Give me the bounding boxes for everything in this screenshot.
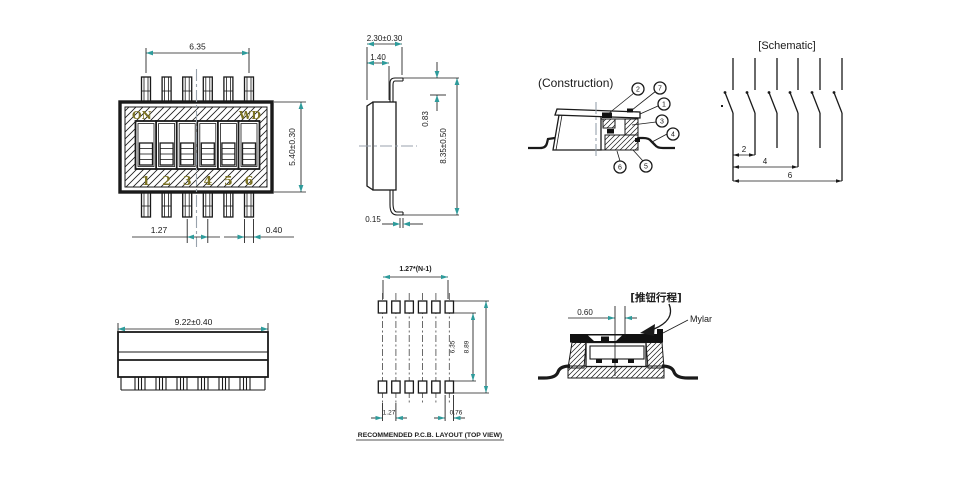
dim-label-height: 5.40±0.30 bbox=[287, 128, 297, 166]
base-block bbox=[605, 135, 638, 150]
dim-label-pad-width: 0.76 bbox=[450, 410, 463, 417]
right-lead bbox=[662, 366, 698, 378]
mylar-label: Mylar bbox=[690, 314, 712, 324]
left-lead bbox=[528, 138, 555, 148]
travel-arrow bbox=[654, 304, 671, 329]
left-wall-section bbox=[568, 343, 586, 369]
position-label-4: 4 bbox=[763, 157, 768, 166]
brand-marking: WD bbox=[238, 109, 261, 122]
dim-label-lead-thickness: 0.15 bbox=[365, 215, 381, 224]
switch-number: 6 bbox=[245, 173, 254, 188]
on-marking: ON bbox=[132, 109, 152, 122]
contact bbox=[607, 129, 614, 134]
switch-number: 2 bbox=[162, 173, 171, 188]
schematic-title: [Schematic] bbox=[758, 40, 815, 52]
switch-number: 4 bbox=[203, 173, 212, 188]
cover-tab bbox=[627, 109, 633, 113]
callout-1-label: 1 bbox=[662, 102, 666, 109]
switch-number: 3 bbox=[183, 173, 192, 188]
travel-label: [推钮行程] bbox=[630, 291, 682, 304]
bottom-lead bbox=[390, 190, 403, 215]
switch-number: 5 bbox=[224, 173, 233, 188]
callout-3-label: 3 bbox=[660, 119, 664, 126]
dim-label-travel: 0.60 bbox=[577, 308, 593, 317]
dim-label-pin-width: 0.40 bbox=[266, 225, 283, 235]
pcb-layout-caption: RECOMMENDED P.C.B. LAYOUT (TOP VIEW) bbox=[358, 432, 502, 439]
callout-4-label: 4 bbox=[671, 132, 675, 139]
mylar-edge bbox=[657, 329, 663, 342]
callout-6-label: 6 bbox=[618, 165, 622, 172]
side-view-drawing: 2.30±0.30 1.40 0.83 8.35±0.50 bbox=[333, 16, 478, 241]
top-view-drawing: ON WD 1 2 3 4 5 6 6.35 5.40±0.30 1.27 0.… bbox=[98, 33, 323, 253]
construction-view-drawing: (Construction) 2 7 1 3 bbox=[528, 62, 703, 197]
position-label-6: 6 bbox=[788, 171, 793, 180]
dim-label-width: 6.35 bbox=[189, 42, 206, 52]
position-label-2: 2 bbox=[742, 145, 747, 154]
top-lead bbox=[390, 78, 403, 102]
button bbox=[601, 337, 609, 342]
front-view-drawing: 9.22±0.40 bbox=[98, 296, 293, 401]
construction-title: (Construction) bbox=[538, 76, 613, 90]
dim-label-outer-span: 8.89 bbox=[464, 340, 471, 353]
schematic-view-drawing: [Schematic] 2 4 6 bbox=[706, 28, 891, 193]
travel-view-drawing: 0.60 [推钮行程] Mylar bbox=[538, 276, 743, 401]
callout-7-label: 7 bbox=[658, 86, 662, 93]
callout-2-label: 2 bbox=[636, 87, 640, 94]
dim-label-pitch-total: 1.27*(N-1) bbox=[399, 266, 431, 273]
body-section bbox=[553, 115, 601, 150]
callout-5-label: 5 bbox=[644, 164, 648, 171]
left-lead bbox=[538, 366, 570, 378]
right-wall-section bbox=[646, 343, 664, 369]
dim-label-total-width: 2.30±0.30 bbox=[367, 34, 403, 43]
pcb-layout-drawing: 1.27*(N-1) 6.35 8.89 1.27 0.76 bbox=[343, 256, 513, 446]
dim-label-pitch: 1.27 bbox=[151, 225, 168, 235]
dim-label-length: 9.22±0.40 bbox=[175, 317, 213, 327]
switch-number: 1 bbox=[142, 173, 151, 188]
technical-drawing-sheet: ON WD 1 2 3 4 5 6 6.35 5.40±0.30 1.27 0.… bbox=[0, 0, 960, 488]
body-front bbox=[118, 332, 268, 377]
contact-dots bbox=[721, 91, 835, 107]
dim-label-lead-span: 8.35±0.50 bbox=[439, 128, 448, 164]
switch-symbols bbox=[725, 58, 842, 181]
dim-label-body-width: 1.40 bbox=[370, 53, 386, 62]
dim-label-lead-height: 0.83 bbox=[421, 111, 430, 127]
dim-label-inner-span: 6.35 bbox=[450, 340, 457, 353]
housing-wall bbox=[625, 119, 638, 135]
dim-label-pcb-pitch: 1.27 bbox=[383, 410, 396, 417]
actuator-top bbox=[602, 113, 612, 119]
slider-block bbox=[603, 119, 615, 128]
